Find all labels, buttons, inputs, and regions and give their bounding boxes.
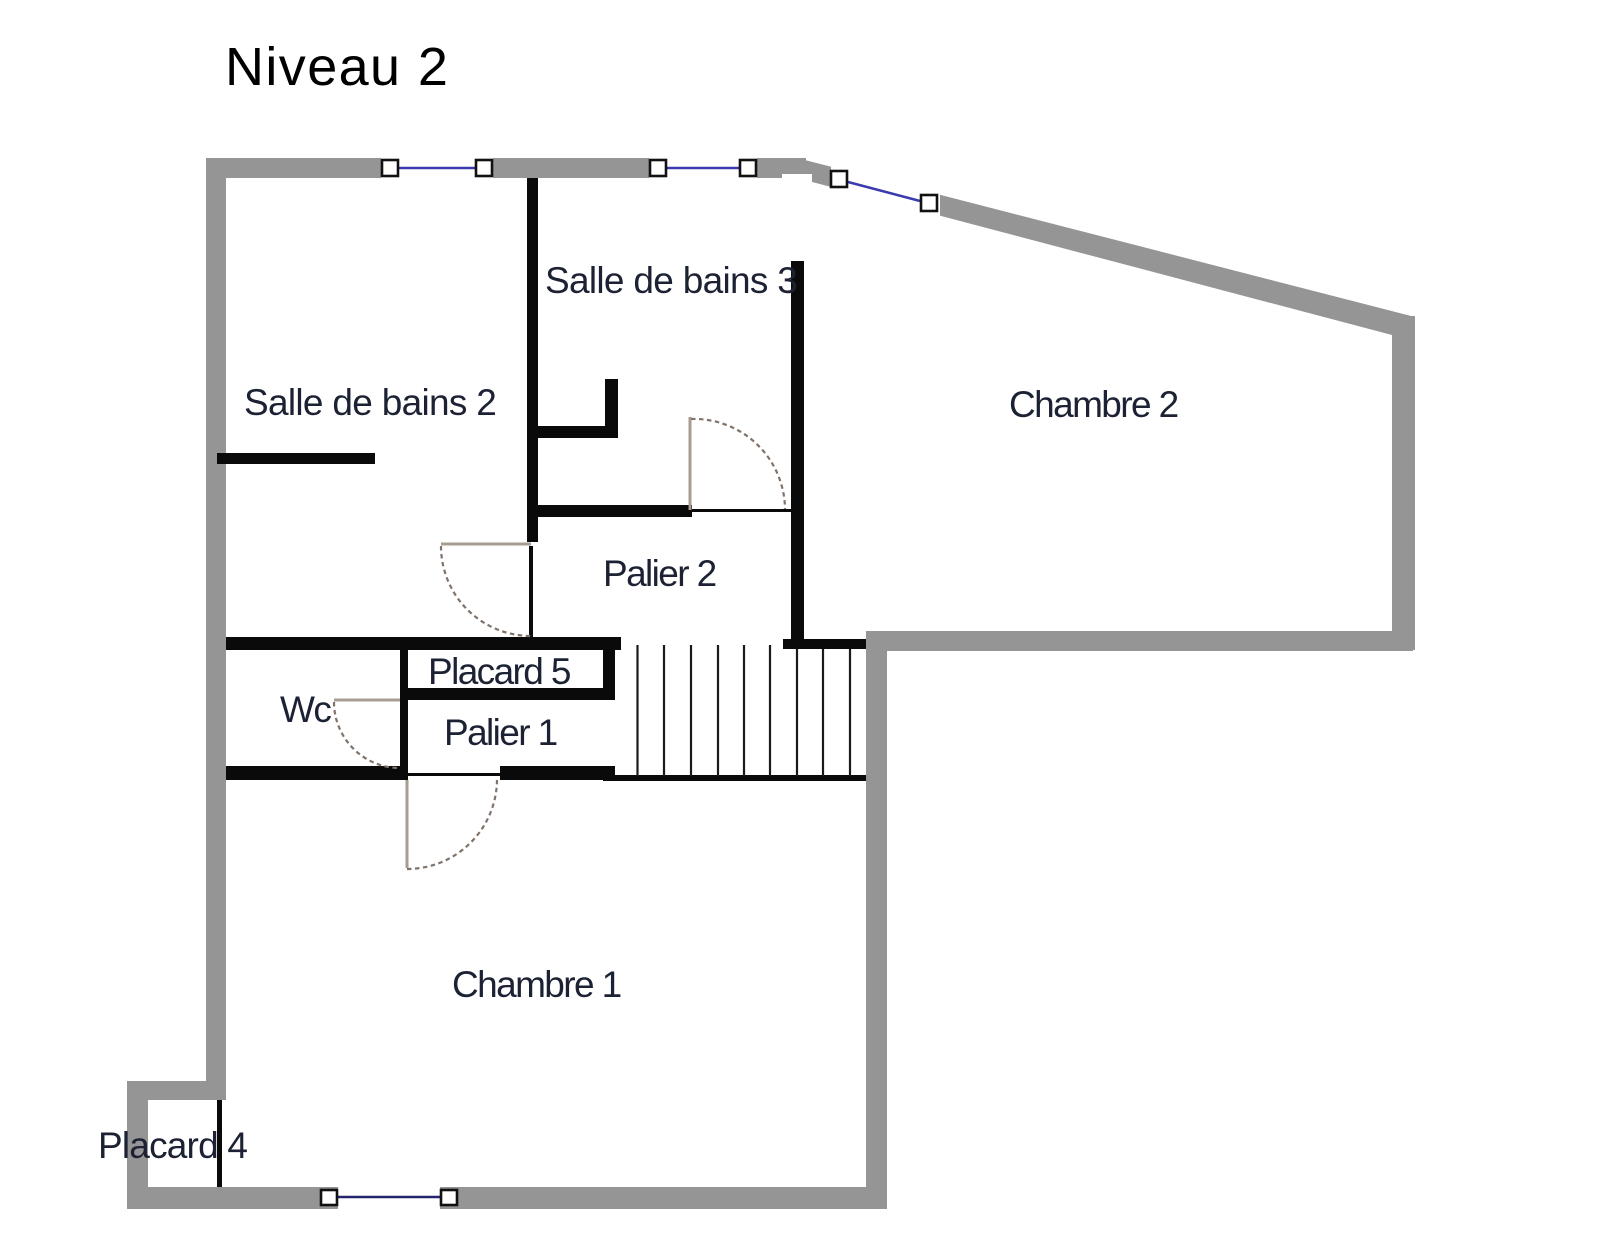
svg-text:Placard 4: Placard 4 <box>98 1125 247 1166</box>
svg-text:Salle de bains 2: Salle de bains 2 <box>244 382 496 423</box>
svg-text:Wc: Wc <box>280 689 331 730</box>
svg-text:Palier 2: Palier 2 <box>603 553 716 594</box>
svg-text:Salle de bains 3: Salle de bains 3 <box>545 260 797 301</box>
svg-text:Niveau 2: Niveau 2 <box>225 37 449 97</box>
svg-text:Chambre 2: Chambre 2 <box>1009 384 1178 425</box>
svg-text:Chambre 1: Chambre 1 <box>452 964 621 1005</box>
svg-text:Placard 5: Placard 5 <box>428 651 571 692</box>
svg-text:Palier 1: Palier 1 <box>444 712 557 753</box>
